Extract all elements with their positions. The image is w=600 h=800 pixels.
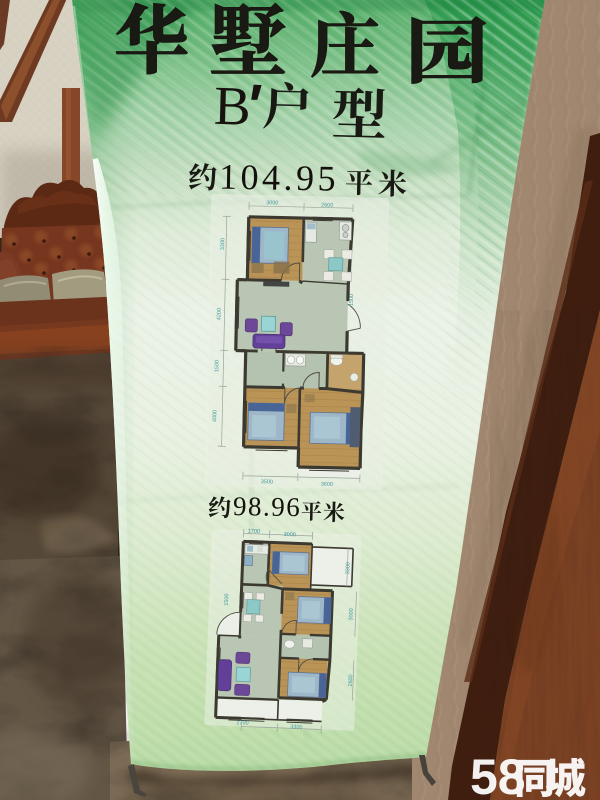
svg-text:B: B [213, 75, 251, 137]
svg-text:98.96: 98.96 [233, 491, 302, 522]
svg-text:104.95: 104.95 [219, 157, 340, 199]
